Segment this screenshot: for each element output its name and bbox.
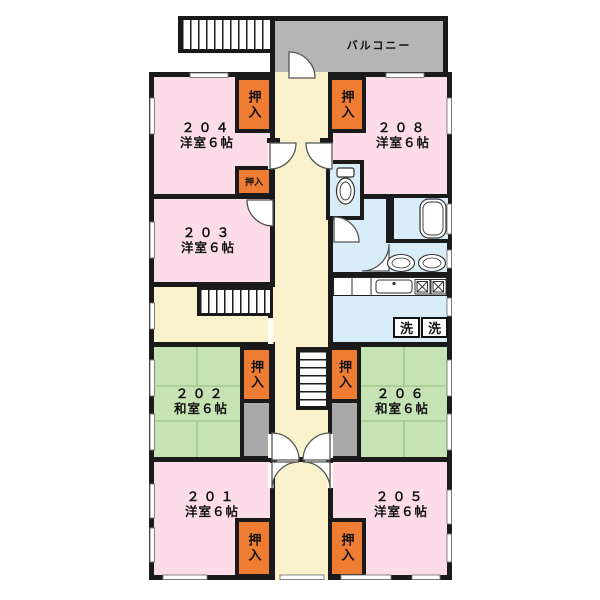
corridor-cross-wall [272,457,330,462]
laundry-box-1: 洗 [393,317,420,338]
closet-208-label: 押入 [338,90,357,120]
room-206-number: ２０６ [376,386,427,402]
room-201-type: 洋室６帖 [185,505,239,521]
room-201-number: ２０１ [186,489,237,505]
laundry-label-1: 洗 [400,318,413,337]
toilet-room [326,160,364,220]
closet-205: 押入 [328,518,366,578]
exterior-staircase [178,16,272,53]
room-202-type: 和室６帖 [174,402,228,418]
room-205-type: 洋室６帖 [374,505,428,521]
door-frame-stub-right [320,138,333,143]
closet-202: 押入 [240,346,273,403]
closet-204-label: 押入 [245,90,264,120]
balcony-label: バルコニー [347,37,412,53]
closet-201: 押入 [235,518,273,578]
laundry-label-2: 洗 [428,318,441,337]
room-204-type: 洋室６帖 [180,136,234,152]
bathroom [390,194,452,243]
room-202-number: ２０２ [175,386,226,402]
corridor [267,72,333,580]
washroom-divider-wall [386,194,391,243]
room-205-number: ２０５ [375,489,426,505]
central-staircase [296,347,330,410]
room-208-type: 洋室６帖 [376,136,430,152]
closet-201-label: 押入 [245,533,264,563]
closet-206: 押入 [328,346,361,403]
room-203-number: ２０３ [182,225,233,241]
floor-plan: バルコニー ２０４ 洋室６帖 ２０８ 洋室６帖 ２０３ 洋室６帖 ２０２ 和室６… [0,0,600,600]
closet-205-label: 押入 [338,533,357,563]
room-203-type: 洋室６帖 [181,241,235,257]
door-frame-stub-left [267,138,280,143]
closet-204b: 押入 [235,166,273,197]
closet-208: 押入 [328,76,366,133]
closet-206-label: 押入 [335,360,354,390]
mid-staircase [197,287,273,316]
laundry-box-2: 洗 [421,317,448,338]
closet-204b-label: 押入 [245,175,263,188]
closet-202-label: 押入 [247,360,266,390]
closet-204: 押入 [235,76,273,133]
room-204-number: ２０４ [181,120,232,136]
room-208-number: ２０８ [377,120,428,136]
vestibule-right [328,399,361,460]
room-203: ２０３ 洋室６帖 [149,194,275,287]
kitchen-counter [333,277,447,296]
vestibule-left [240,399,273,460]
balcony: バルコニー [270,16,448,78]
room-206-type: 和室６帖 [375,402,429,418]
